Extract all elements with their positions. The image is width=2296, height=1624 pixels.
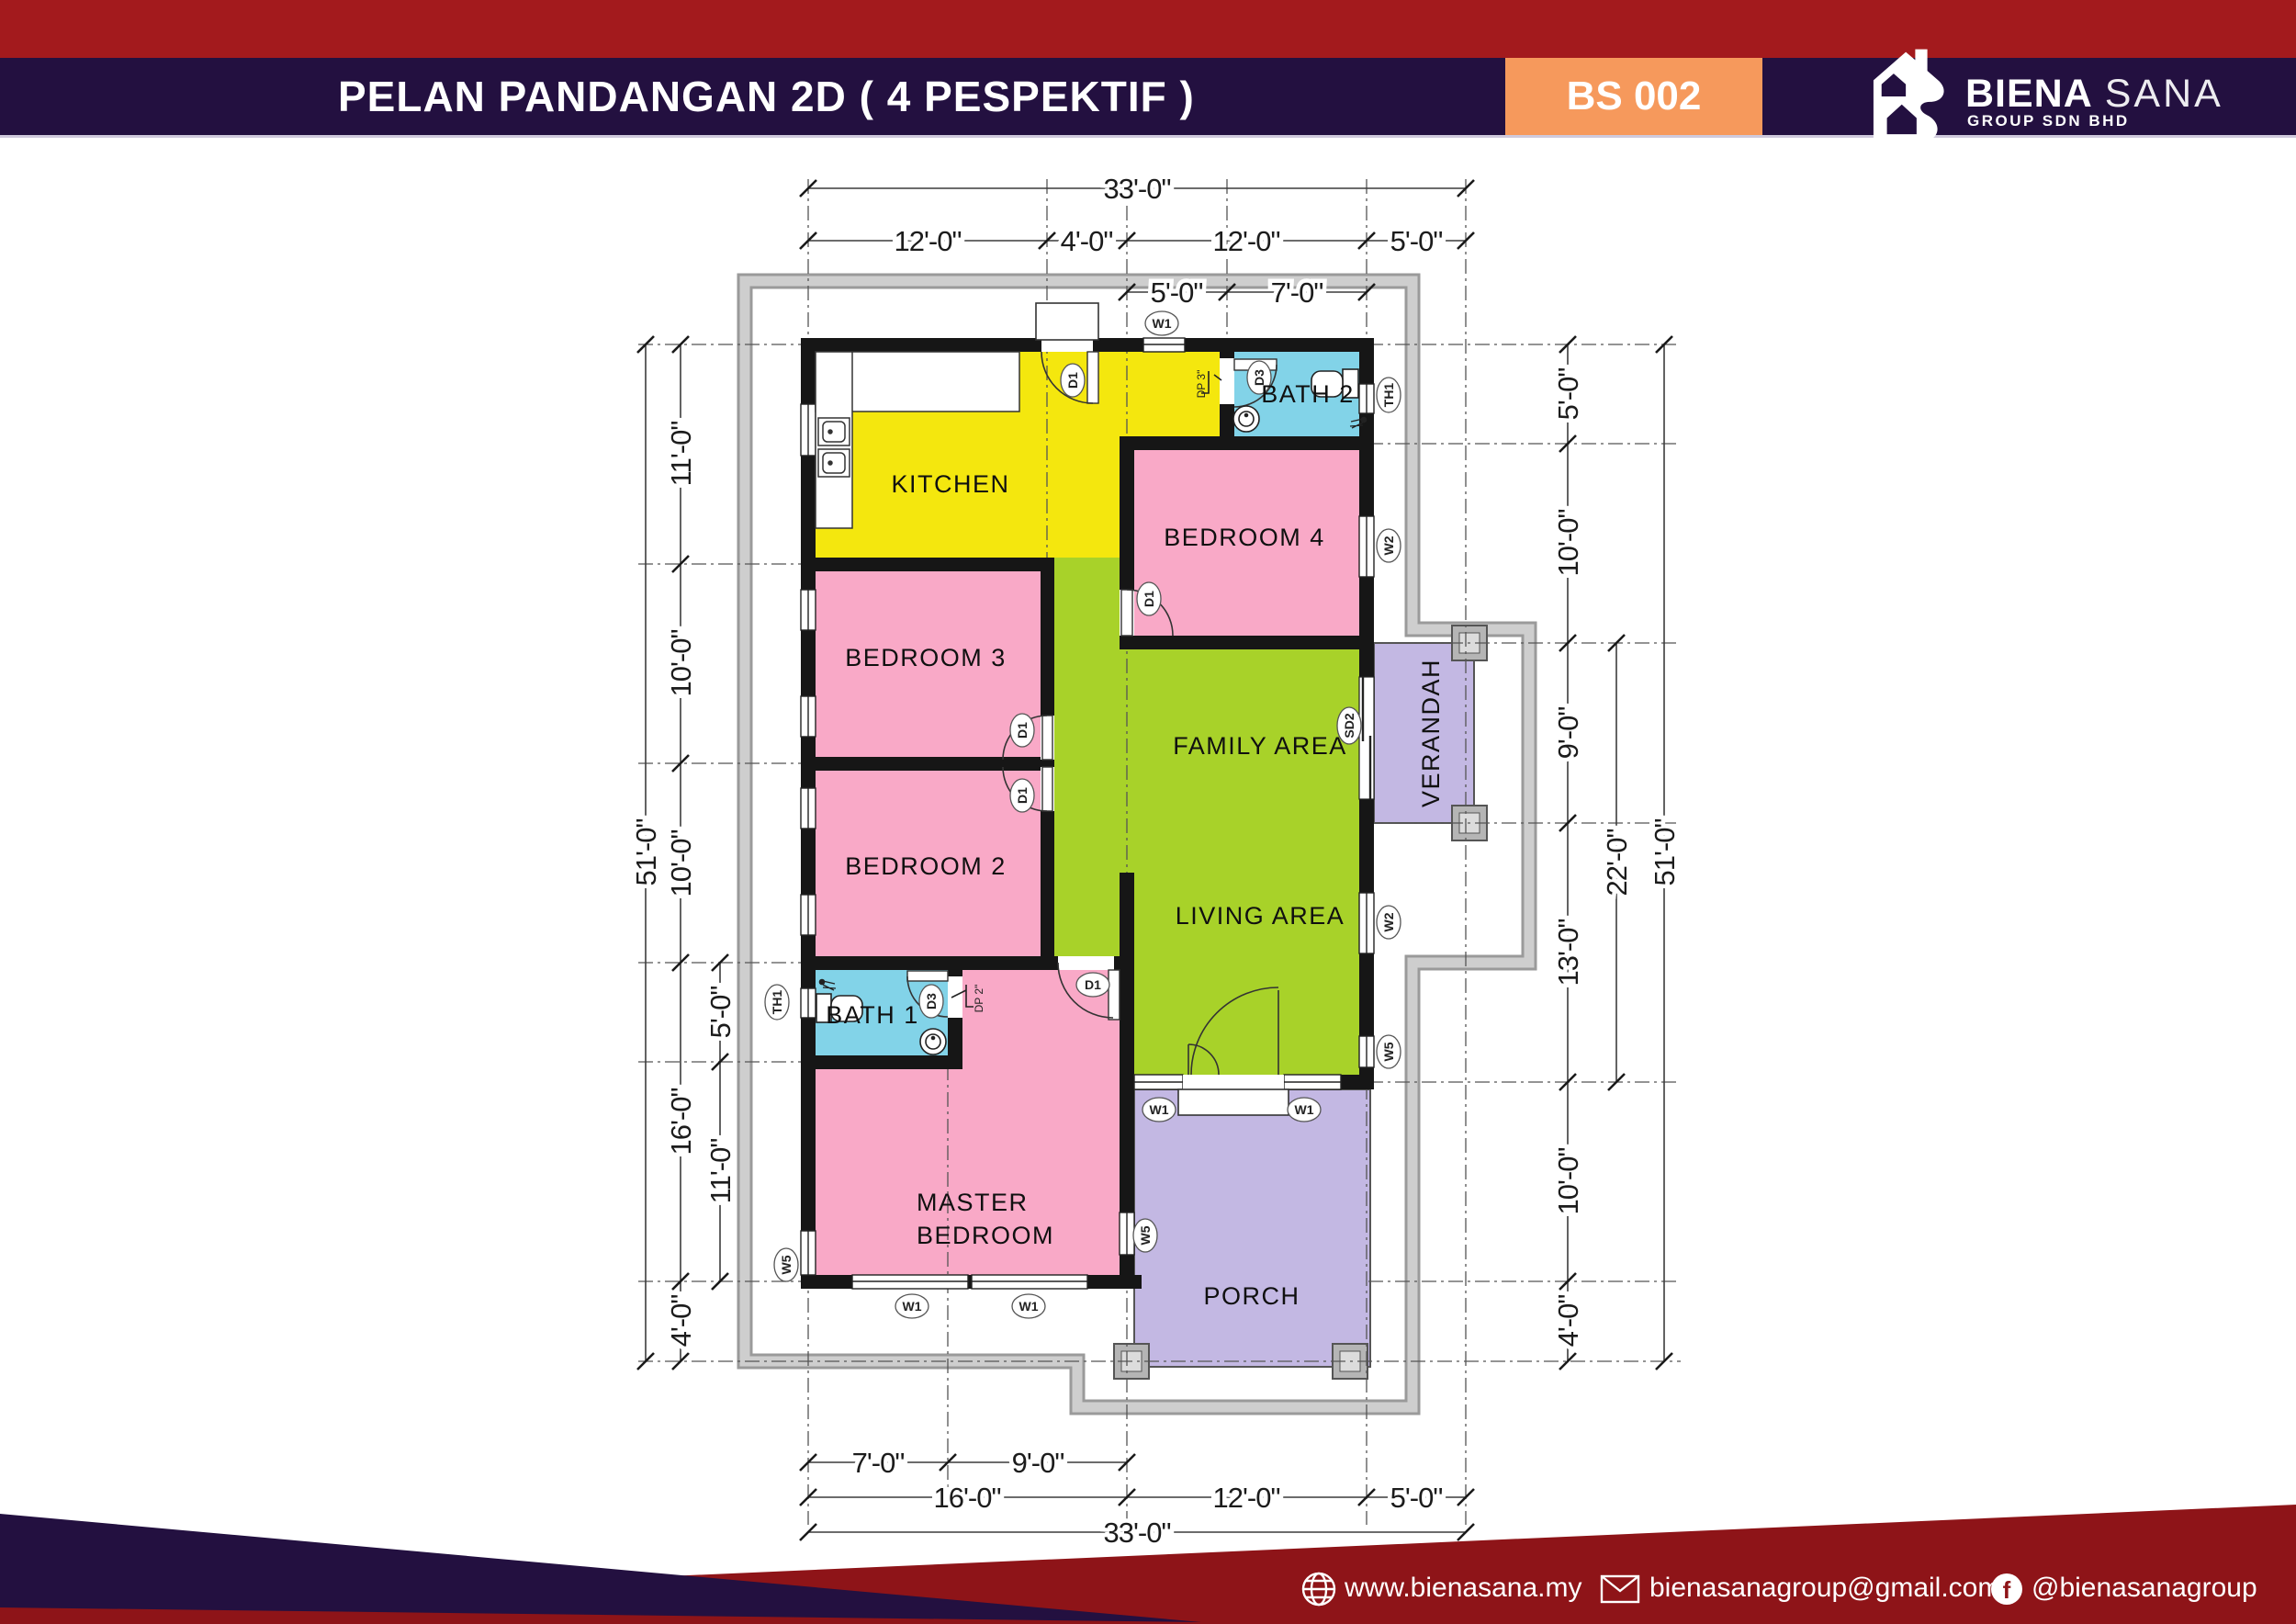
tag-w5-living: W5 xyxy=(1381,1042,1396,1061)
tag-d1-master: D1 xyxy=(1085,977,1101,992)
dim-bottom-7: 7'-0" xyxy=(852,1447,905,1479)
tag-d1-bedroom4: D1 xyxy=(1142,591,1156,607)
tag-w1-master-bottom-2: W1 xyxy=(1019,1299,1039,1314)
dim-left-51: 51'-0" xyxy=(630,819,662,886)
dim-bottom-16: 16'-0" xyxy=(934,1482,1001,1514)
plan-code-badge: BS 002 xyxy=(1505,58,1762,135)
room-label-kitchen: KITCHEN xyxy=(891,470,1009,498)
room-label-master-line1: MASTER xyxy=(917,1189,1029,1216)
brand-logo-icon xyxy=(1871,48,1952,150)
dim-left-10a: 10'-0" xyxy=(665,630,697,697)
dim-topsub-5: 5'-0" xyxy=(1151,276,1203,309)
top-red-stripe xyxy=(0,0,2296,58)
brand-name-bold: BIENA xyxy=(1965,72,2093,116)
tag-d1-kitchen: D1 xyxy=(1065,372,1080,389)
dim-top-12a: 12'-0" xyxy=(895,225,962,257)
room-label-bedroom2: BEDROOM 2 xyxy=(845,852,1007,880)
footer-social[interactable]: @bienasanagroup xyxy=(2032,1573,2257,1604)
room-label-bedroom3: BEDROOM 3 xyxy=(845,644,1007,671)
page-title: PELAN PANDANGAN 2D ( 4 PESPEKTIF ) xyxy=(338,58,1195,135)
dim-bottom-12: 12'-0" xyxy=(1213,1482,1280,1514)
label-dp3: DP 3" xyxy=(1195,370,1208,399)
dim-right-4: 4'-0" xyxy=(1552,1295,1584,1348)
brand-name: BIENA SANA xyxy=(1965,72,2223,117)
dim-right-22: 22'-0" xyxy=(1601,829,1633,897)
dim-right-51: 51'-0" xyxy=(1649,819,1681,886)
dim-left-11: 11'-0" xyxy=(665,422,697,487)
room-label-living: LIVING AREA xyxy=(1176,902,1345,930)
dim-top-5: 5'-0" xyxy=(1390,225,1443,257)
dim-top-4: 4'-0" xyxy=(1061,225,1113,257)
dim-bottom-5: 5'-0" xyxy=(1390,1482,1443,1514)
room-label-verandah: VERANDAH xyxy=(1417,659,1445,807)
floor-plan-sheet: 33'-0" 12'-0" 4'-0" 12'-0" 5'-0" 5'-0" 7… xyxy=(0,0,2296,1624)
room-label-family: FAMILY AREA xyxy=(1173,732,1347,760)
dim-left-4: 4'-0" xyxy=(665,1295,697,1348)
dim-topsub-7: 7'-0" xyxy=(1271,276,1323,309)
room-label-bath2: BATH 2 xyxy=(1261,380,1355,408)
brand-name-light: SANA xyxy=(2105,72,2223,116)
tag-w1-porch-1: W1 xyxy=(1150,1102,1169,1117)
tag-th1-bath2: TH1 xyxy=(1381,383,1396,408)
tag-w1-top: W1 xyxy=(1153,316,1172,331)
dim-right-10b: 10'-0" xyxy=(1552,1148,1584,1215)
tag-w2-living: W2 xyxy=(1381,912,1396,931)
room-label-bedroom4: BEDROOM 4 xyxy=(1164,524,1325,551)
room-label-porch: PORCH xyxy=(1203,1282,1300,1310)
dim-leftsub-5: 5'-0" xyxy=(704,987,737,1039)
dim-left-10b: 10'-0" xyxy=(665,830,697,897)
dim-overall-width-top: 33'-0" xyxy=(1104,173,1171,205)
dim-right-13: 13'-0" xyxy=(1552,919,1584,987)
svg-text:f: f xyxy=(2003,1576,2011,1604)
dim-bottom-9: 9'-0" xyxy=(1012,1447,1064,1479)
tag-d3-bath1: D3 xyxy=(924,993,939,1009)
tag-w1-master-bottom-1: W1 xyxy=(903,1299,922,1314)
tag-w2-bedroom4: W2 xyxy=(1381,536,1396,555)
dim-leftsub-11: 11'-0" xyxy=(704,1139,737,1204)
dim-left-16: 16'-0" xyxy=(665,1088,697,1156)
tag-d1-bedroom3: D1 xyxy=(1015,722,1030,739)
floor-plan-drawing: 33'-0" 12'-0" 4'-0" 12'-0" 5'-0" 5'-0" 7… xyxy=(0,0,2296,1624)
label-dp2: DP 2" xyxy=(973,985,985,1013)
brand-subtitle: GROUP SDN BHD xyxy=(1967,112,2130,130)
tag-d1-bedroom2: D1 xyxy=(1015,787,1030,804)
room-label-master-line2: BEDROOM xyxy=(917,1222,1054,1249)
dim-right-10a: 10'-0" xyxy=(1552,510,1584,577)
dim-right-5: 5'-0" xyxy=(1552,368,1584,421)
dim-top-12b: 12'-0" xyxy=(1213,225,1280,257)
tag-w1-porch-2: W1 xyxy=(1295,1102,1314,1117)
porch-slab xyxy=(1134,1089,1370,1367)
tag-th1-bath1: TH1 xyxy=(770,990,784,1015)
room-label-bath1: BATH 1 xyxy=(826,1001,919,1029)
footer-email[interactable]: bienasanagroup@gmail.com xyxy=(1649,1573,2000,1604)
footer-website[interactable]: www.bienasana.my xyxy=(1345,1573,1581,1604)
dim-right-9: 9'-0" xyxy=(1552,707,1584,760)
tag-w5-master-left: W5 xyxy=(779,1255,793,1274)
sliding-door-sd2 xyxy=(1359,677,1374,799)
dim-overall-width-bottom: 33'-0" xyxy=(1104,1517,1171,1549)
tag-w5-porch: W5 xyxy=(1138,1225,1153,1245)
